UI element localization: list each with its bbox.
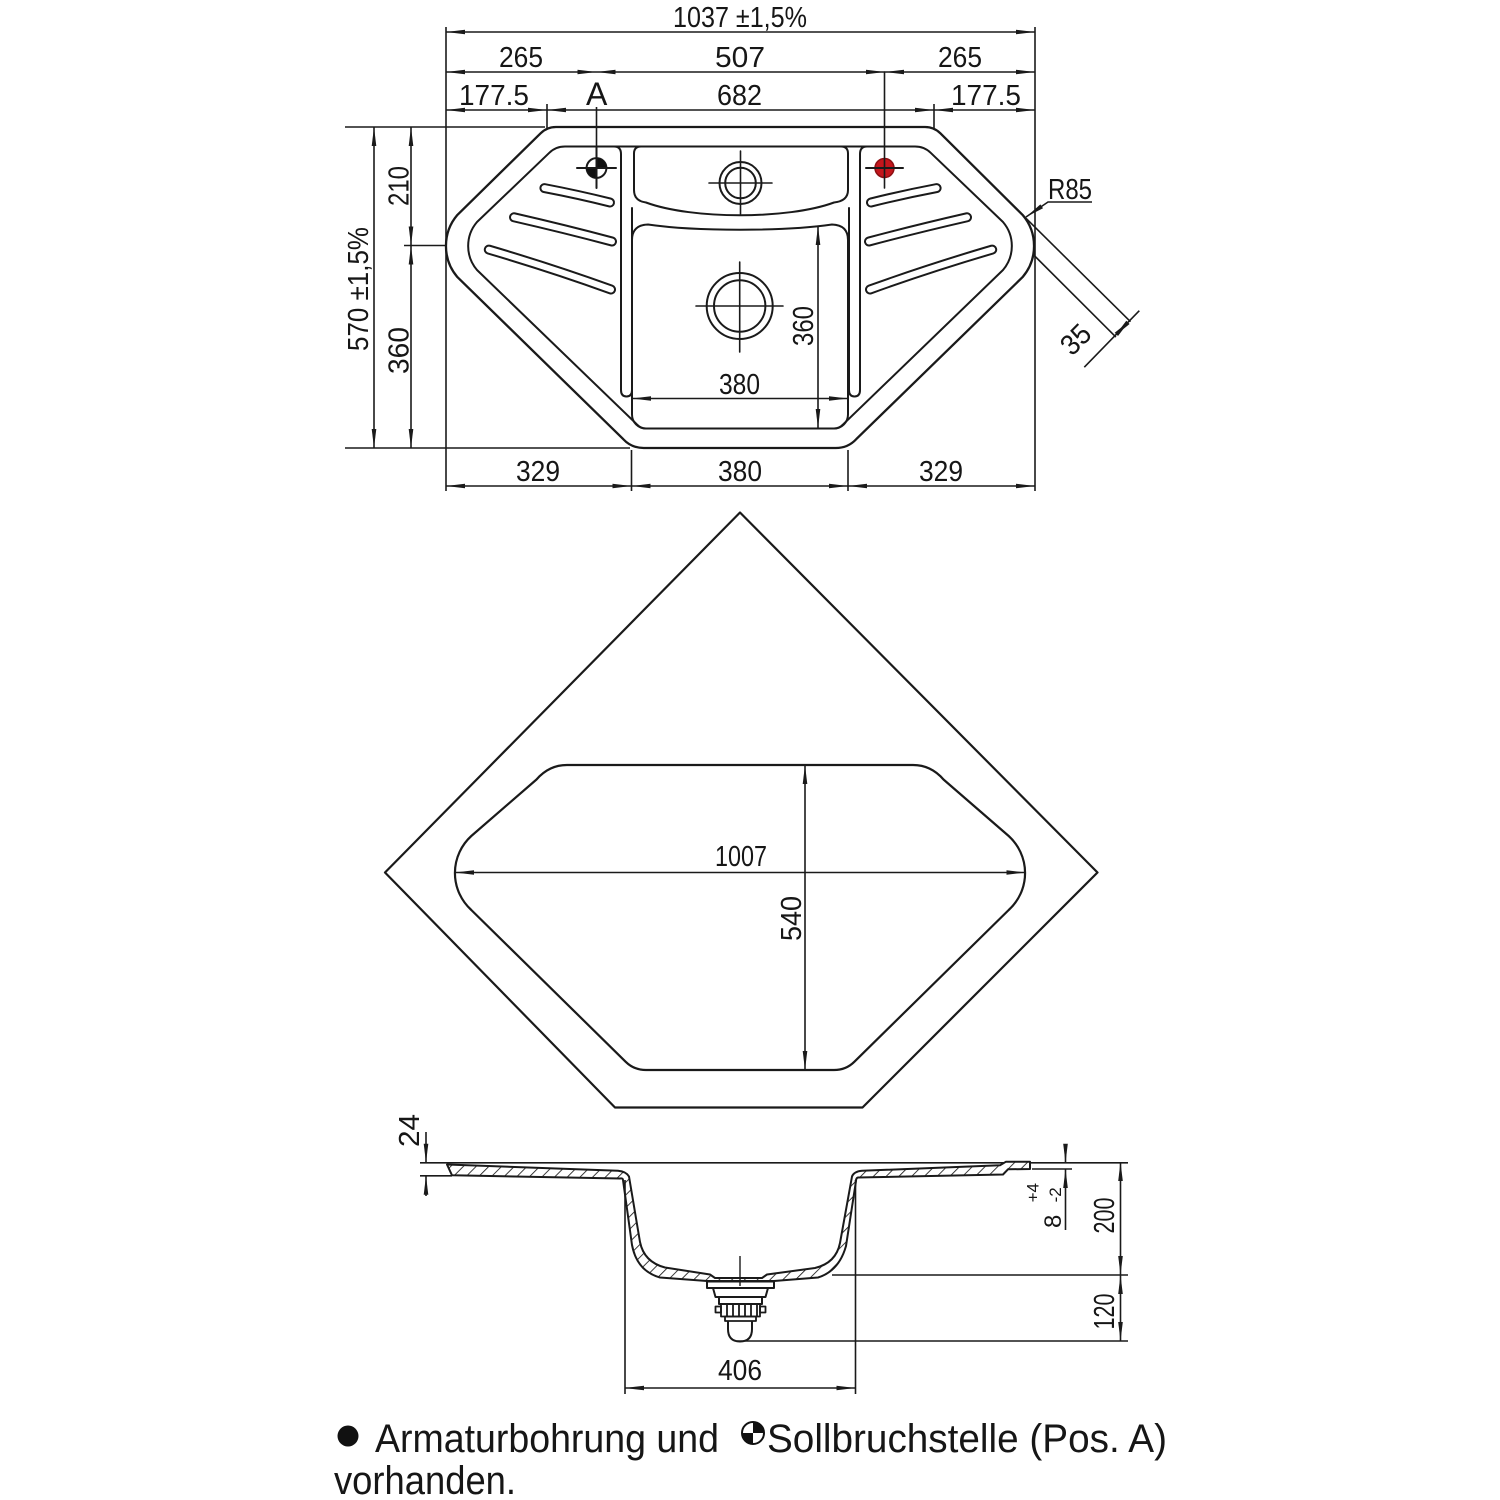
svg-text:682: 682 — [717, 80, 762, 112]
svg-text:R85: R85 — [1048, 174, 1092, 206]
svg-text:380: 380 — [719, 369, 760, 401]
svg-text:507: 507 — [715, 42, 765, 74]
svg-text:540: 540 — [776, 896, 808, 941]
svg-text:360: 360 — [788, 306, 820, 346]
svg-text:35: 35 — [1054, 318, 1098, 362]
svg-text:329: 329 — [919, 456, 963, 488]
svg-text:Armaturbohrung und: Armaturbohrung und — [375, 1417, 719, 1461]
svg-text:24: 24 — [394, 1114, 426, 1147]
svg-text:265: 265 — [499, 42, 543, 74]
svg-text:177.5: 177.5 — [459, 80, 529, 112]
svg-text:-2: -2 — [1046, 1187, 1065, 1202]
svg-text:vorhanden.: vorhanden. — [334, 1459, 516, 1500]
svg-text:Sollbruchstelle (Pos. A): Sollbruchstelle (Pos. A) — [767, 1417, 1167, 1461]
svg-text:570 ±1,5%: 570 ±1,5% — [343, 227, 375, 351]
svg-text:210: 210 — [384, 166, 416, 206]
svg-text:1037 ±1,5%: 1037 ±1,5% — [673, 2, 807, 34]
svg-text:329: 329 — [516, 456, 560, 488]
svg-text:380: 380 — [718, 456, 762, 488]
svg-text:1007: 1007 — [715, 841, 767, 873]
svg-text:A: A — [586, 76, 608, 112]
svg-text:200: 200 — [1089, 1198, 1121, 1234]
svg-text:265: 265 — [938, 42, 982, 74]
svg-text:406: 406 — [718, 1355, 762, 1387]
svg-text:120: 120 — [1089, 1294, 1121, 1330]
svg-text:8: 8 — [1040, 1215, 1067, 1228]
svg-text:177.5: 177.5 — [951, 80, 1021, 112]
svg-text:+4: +4 — [1024, 1183, 1043, 1202]
svg-text:360: 360 — [384, 327, 416, 374]
